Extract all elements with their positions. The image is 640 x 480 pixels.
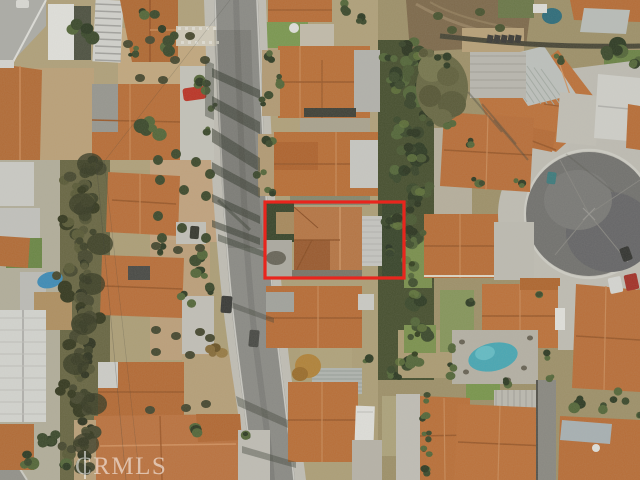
svg-text:CRMLS: CRMLS: [75, 453, 167, 480]
